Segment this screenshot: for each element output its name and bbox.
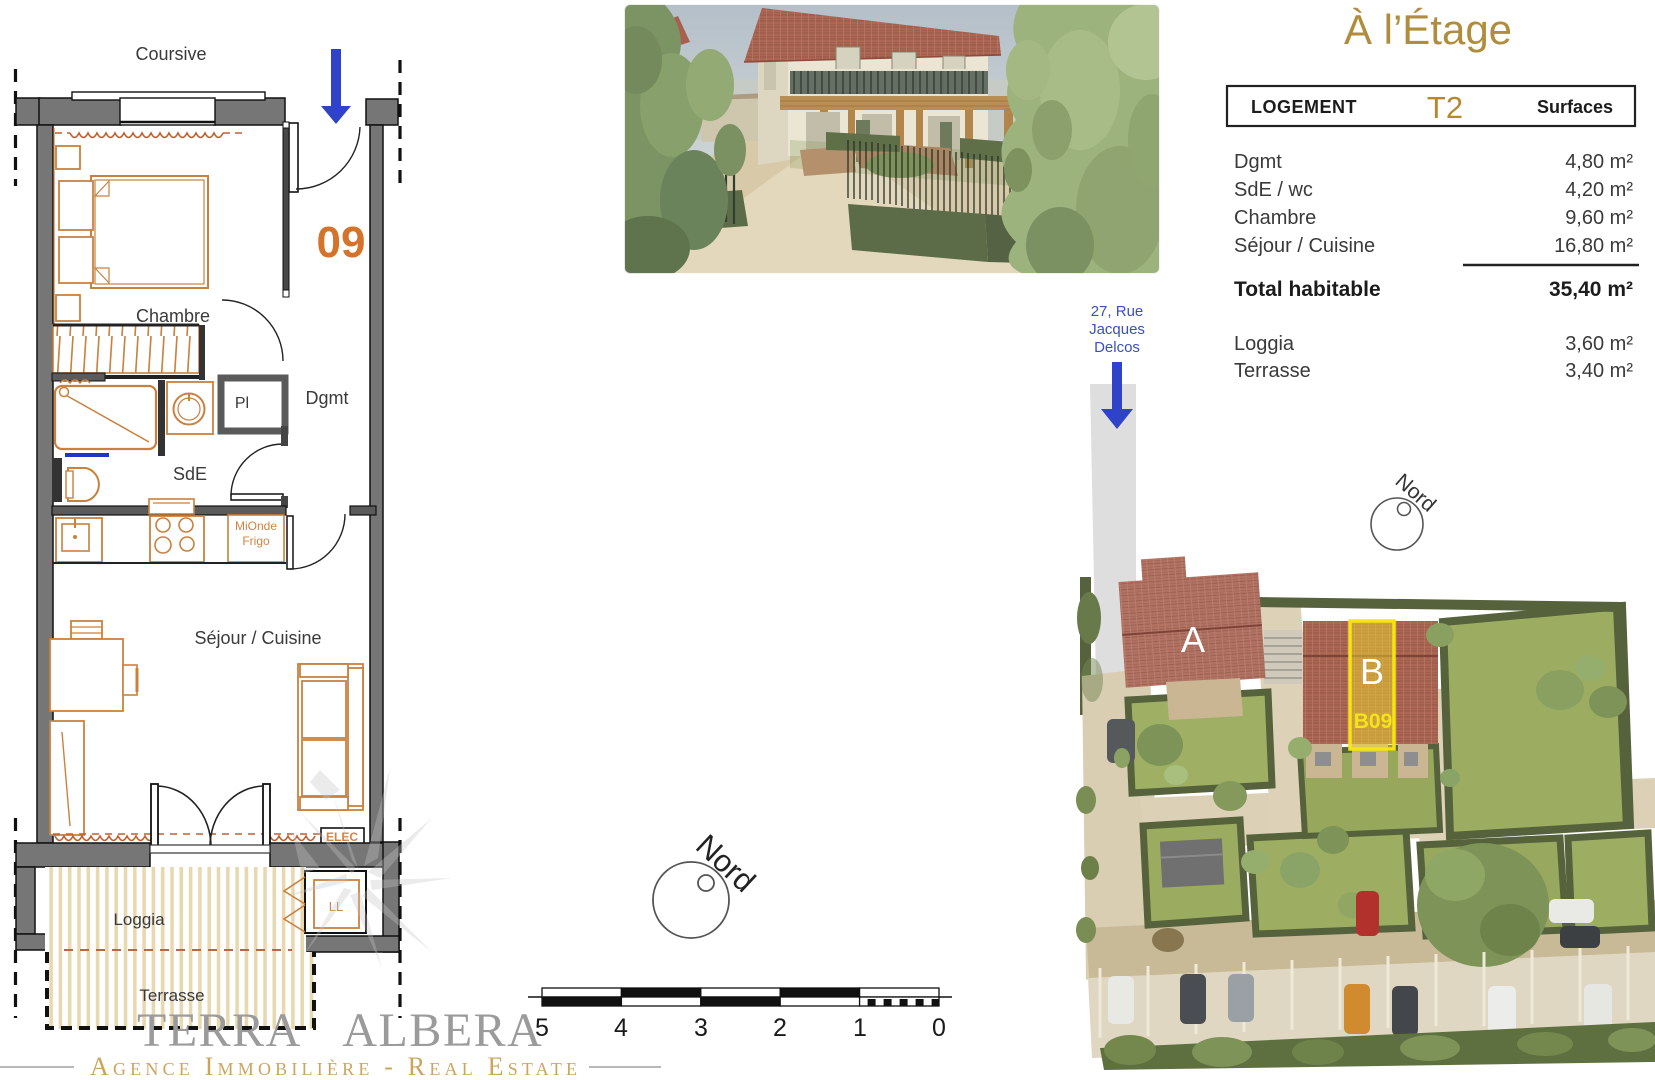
svg-text:Séjour / Cuisine: Séjour / Cuisine: [194, 628, 321, 648]
svg-text:Loggia: Loggia: [113, 910, 165, 929]
svg-text:4,80 m²: 4,80 m²: [1565, 151, 1633, 173]
svg-text:3,40 m²: 3,40 m²: [1565, 360, 1633, 382]
svg-text:0: 0: [932, 1014, 946, 1042]
svg-text:ELEC: ELEC: [326, 830, 358, 844]
svg-text:Delcos: Delcos: [1094, 339, 1140, 356]
svg-text:LOGEMENT: LOGEMENT: [1251, 97, 1357, 117]
svg-text:3: 3: [694, 1014, 708, 1042]
svg-text:09: 09: [317, 218, 366, 267]
svg-text:Total habitable: Total habitable: [1234, 278, 1381, 301]
svg-text:Surfaces: Surfaces: [1537, 97, 1613, 117]
svg-text:Coursive: Coursive: [135, 44, 206, 64]
svg-text:Frigo: Frigo: [242, 534, 270, 548]
svg-text:Chambre: Chambre: [1234, 207, 1316, 229]
svg-text:16,80 m²: 16,80 m²: [1554, 235, 1633, 257]
svg-text:35,40 m²: 35,40 m²: [1549, 278, 1633, 301]
svg-text:1: 1: [853, 1014, 867, 1042]
svg-text:Jacques: Jacques: [1089, 321, 1145, 338]
svg-text:Terrasse: Terrasse: [139, 986, 204, 1005]
svg-text:T2: T2: [1427, 90, 1463, 125]
svg-text:Dgmt: Dgmt: [1234, 151, 1282, 173]
svg-text:Terrasse: Terrasse: [1234, 360, 1311, 382]
svg-text:MiOnde: MiOnde: [235, 519, 277, 533]
svg-text:3,60 m²: 3,60 m²: [1565, 333, 1633, 355]
svg-text:B09: B09: [1354, 710, 1393, 733]
svg-text:Dgmt: Dgmt: [305, 388, 348, 408]
svg-text:27, Rue: 27, Rue: [1091, 303, 1144, 320]
svg-text:9,60 m²: 9,60 m²: [1565, 207, 1633, 229]
svg-text:A: A: [1181, 619, 1205, 660]
svg-text:Séjour / Cuisine: Séjour / Cuisine: [1234, 235, 1375, 257]
svg-text:Pl: Pl: [235, 395, 249, 412]
svg-text:Loggia: Loggia: [1234, 333, 1295, 355]
svg-text:4,20 m²: 4,20 m²: [1565, 179, 1633, 201]
svg-text:Agence Immobilière - Real Esta: Agence Immobilière - Real Estate: [90, 1052, 581, 1080]
svg-text:Chambre: Chambre: [136, 306, 210, 326]
svg-text:TERRA ALBERA: TERRA ALBERA: [137, 1004, 543, 1057]
svg-text:B: B: [1360, 651, 1384, 692]
svg-text:2: 2: [773, 1014, 787, 1042]
svg-text:À l’Étage: À l’Étage: [1344, 6, 1512, 53]
svg-text:SdE / wc: SdE / wc: [1234, 179, 1313, 201]
svg-text:4: 4: [614, 1014, 628, 1042]
svg-text:SdE: SdE: [173, 464, 207, 484]
